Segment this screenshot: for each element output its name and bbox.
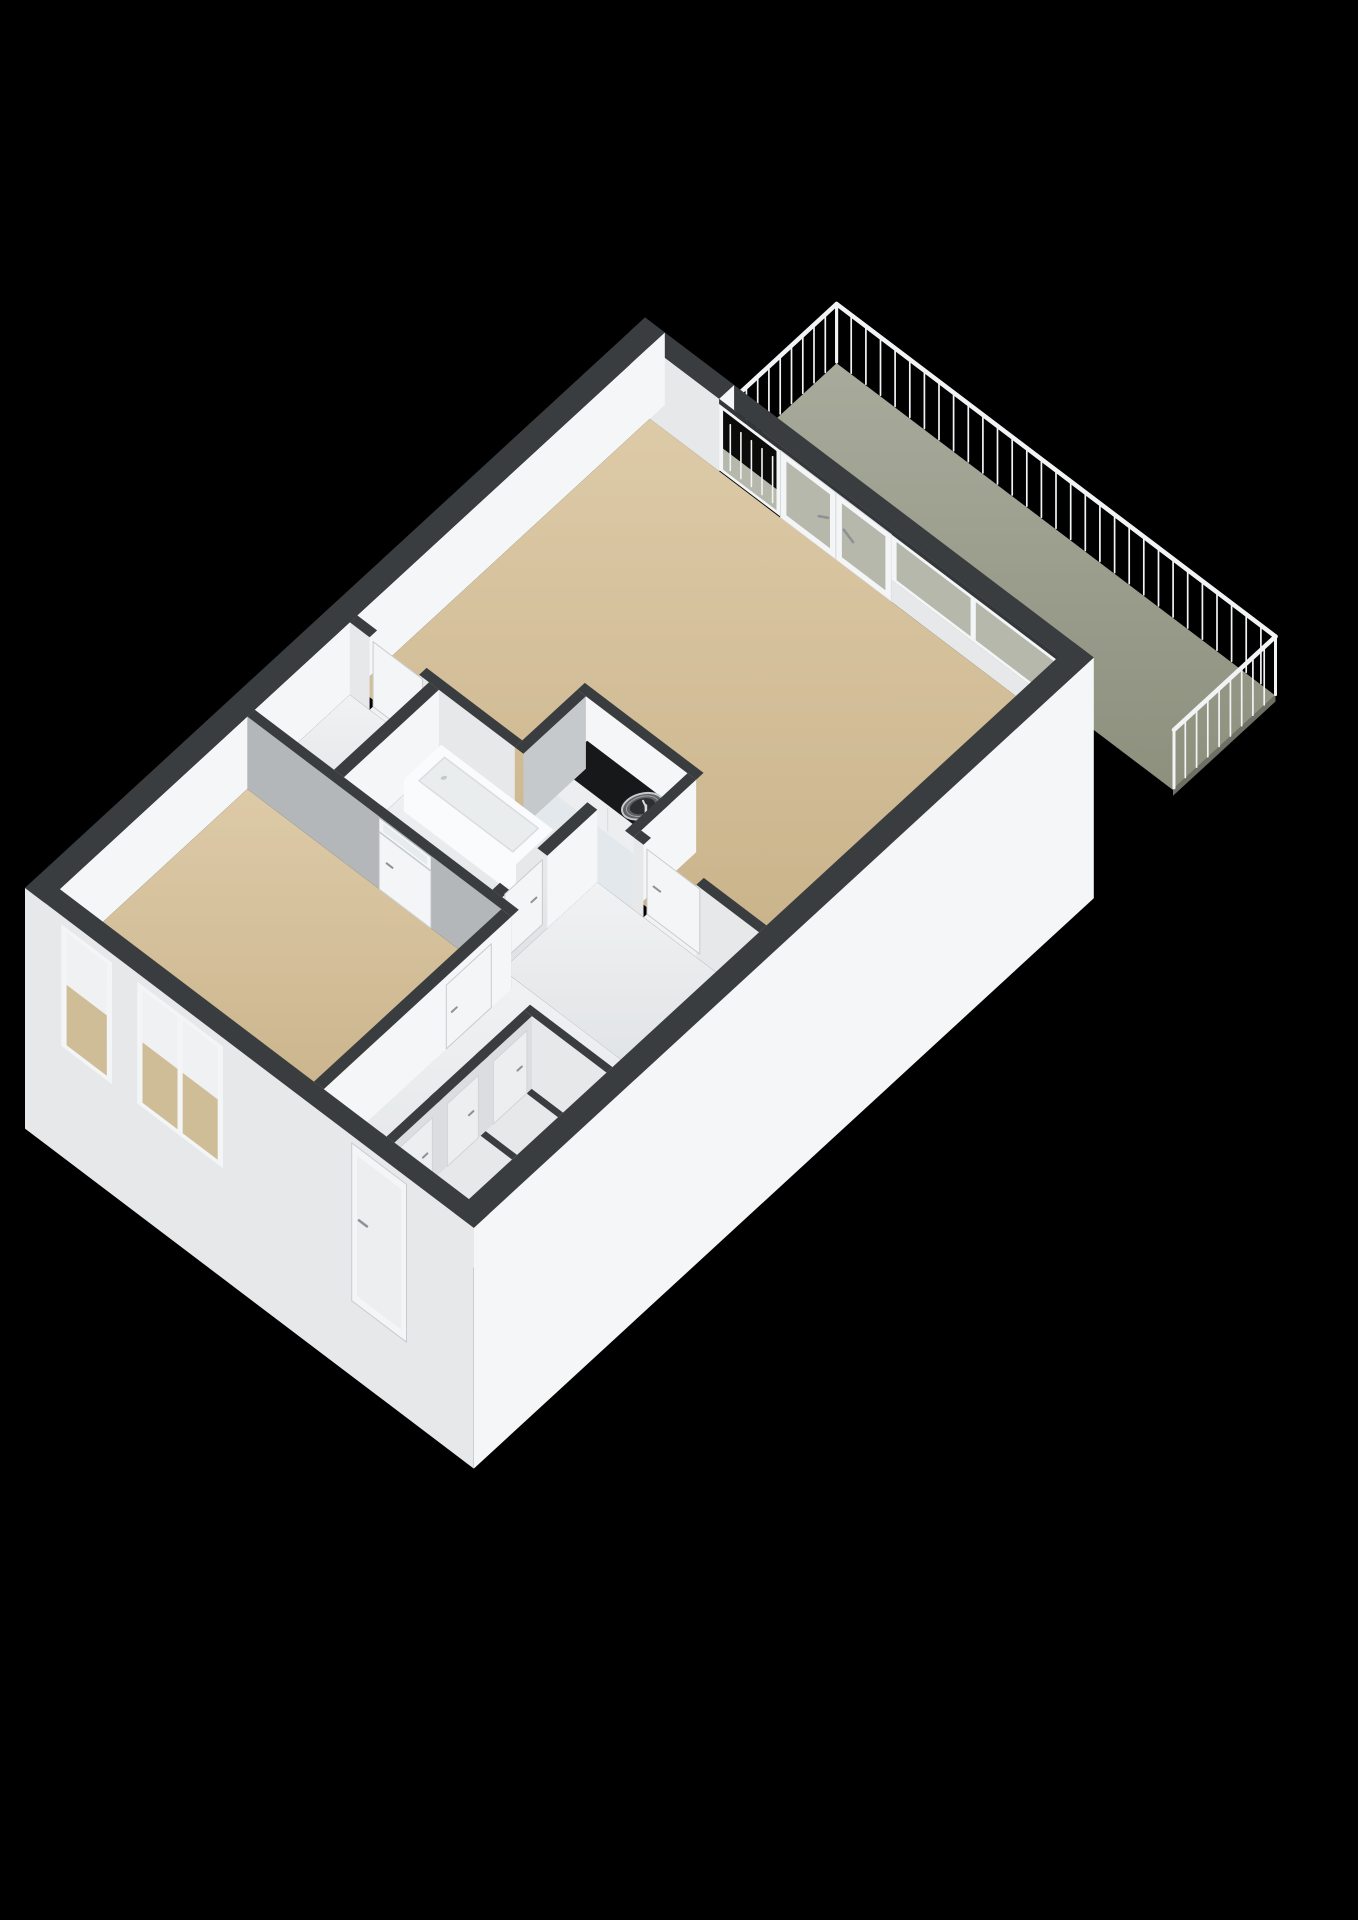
scene-root [25,304,1276,1469]
floorplan-3d [0,0,1358,1920]
floorplan-canvas [0,0,1358,1920]
balcony-door-handle-left [819,516,828,518]
